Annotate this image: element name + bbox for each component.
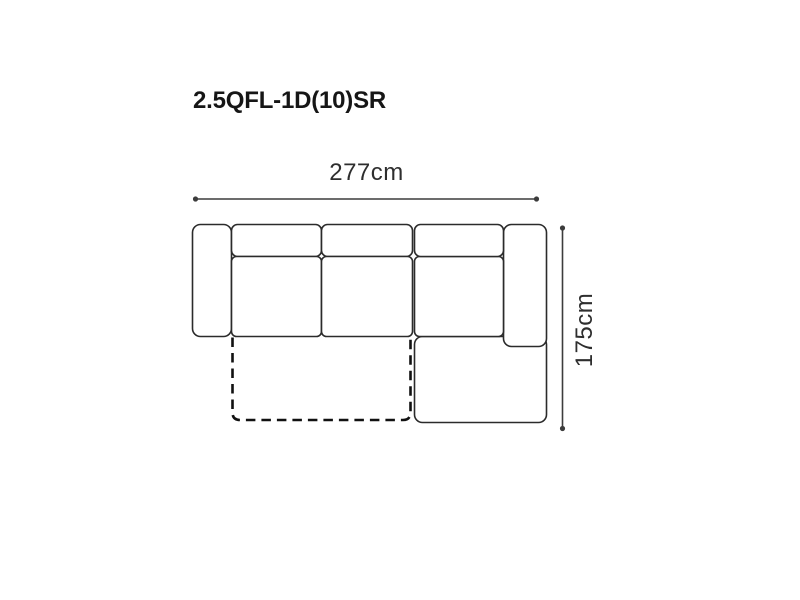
sofa-dimension-drawing bbox=[0, 0, 800, 600]
depth-dimension-line bbox=[560, 225, 565, 431]
seat-cushion-1 bbox=[232, 257, 322, 337]
fold-out-outline-dashed bbox=[233, 338, 411, 421]
back-cushion-3 bbox=[415, 225, 504, 257]
right-armrest bbox=[504, 225, 547, 347]
chaise-seat bbox=[415, 257, 504, 337]
dimension-endpoint-dot bbox=[193, 196, 198, 201]
back-cushion-2 bbox=[322, 225, 413, 257]
dimension-endpoint-dot bbox=[534, 196, 539, 201]
diagram-canvas: 2.5QFL-1D(10)SR 277cm 175cm bbox=[0, 0, 800, 600]
width-dimension-line bbox=[193, 196, 539, 201]
chaise-extension bbox=[415, 337, 547, 423]
left-armrest bbox=[193, 225, 232, 337]
back-cushion-1 bbox=[232, 225, 322, 257]
dimension-endpoint-dot bbox=[560, 426, 565, 431]
dimension-endpoint-dot bbox=[560, 225, 565, 230]
seat-cushion-2 bbox=[322, 257, 413, 337]
